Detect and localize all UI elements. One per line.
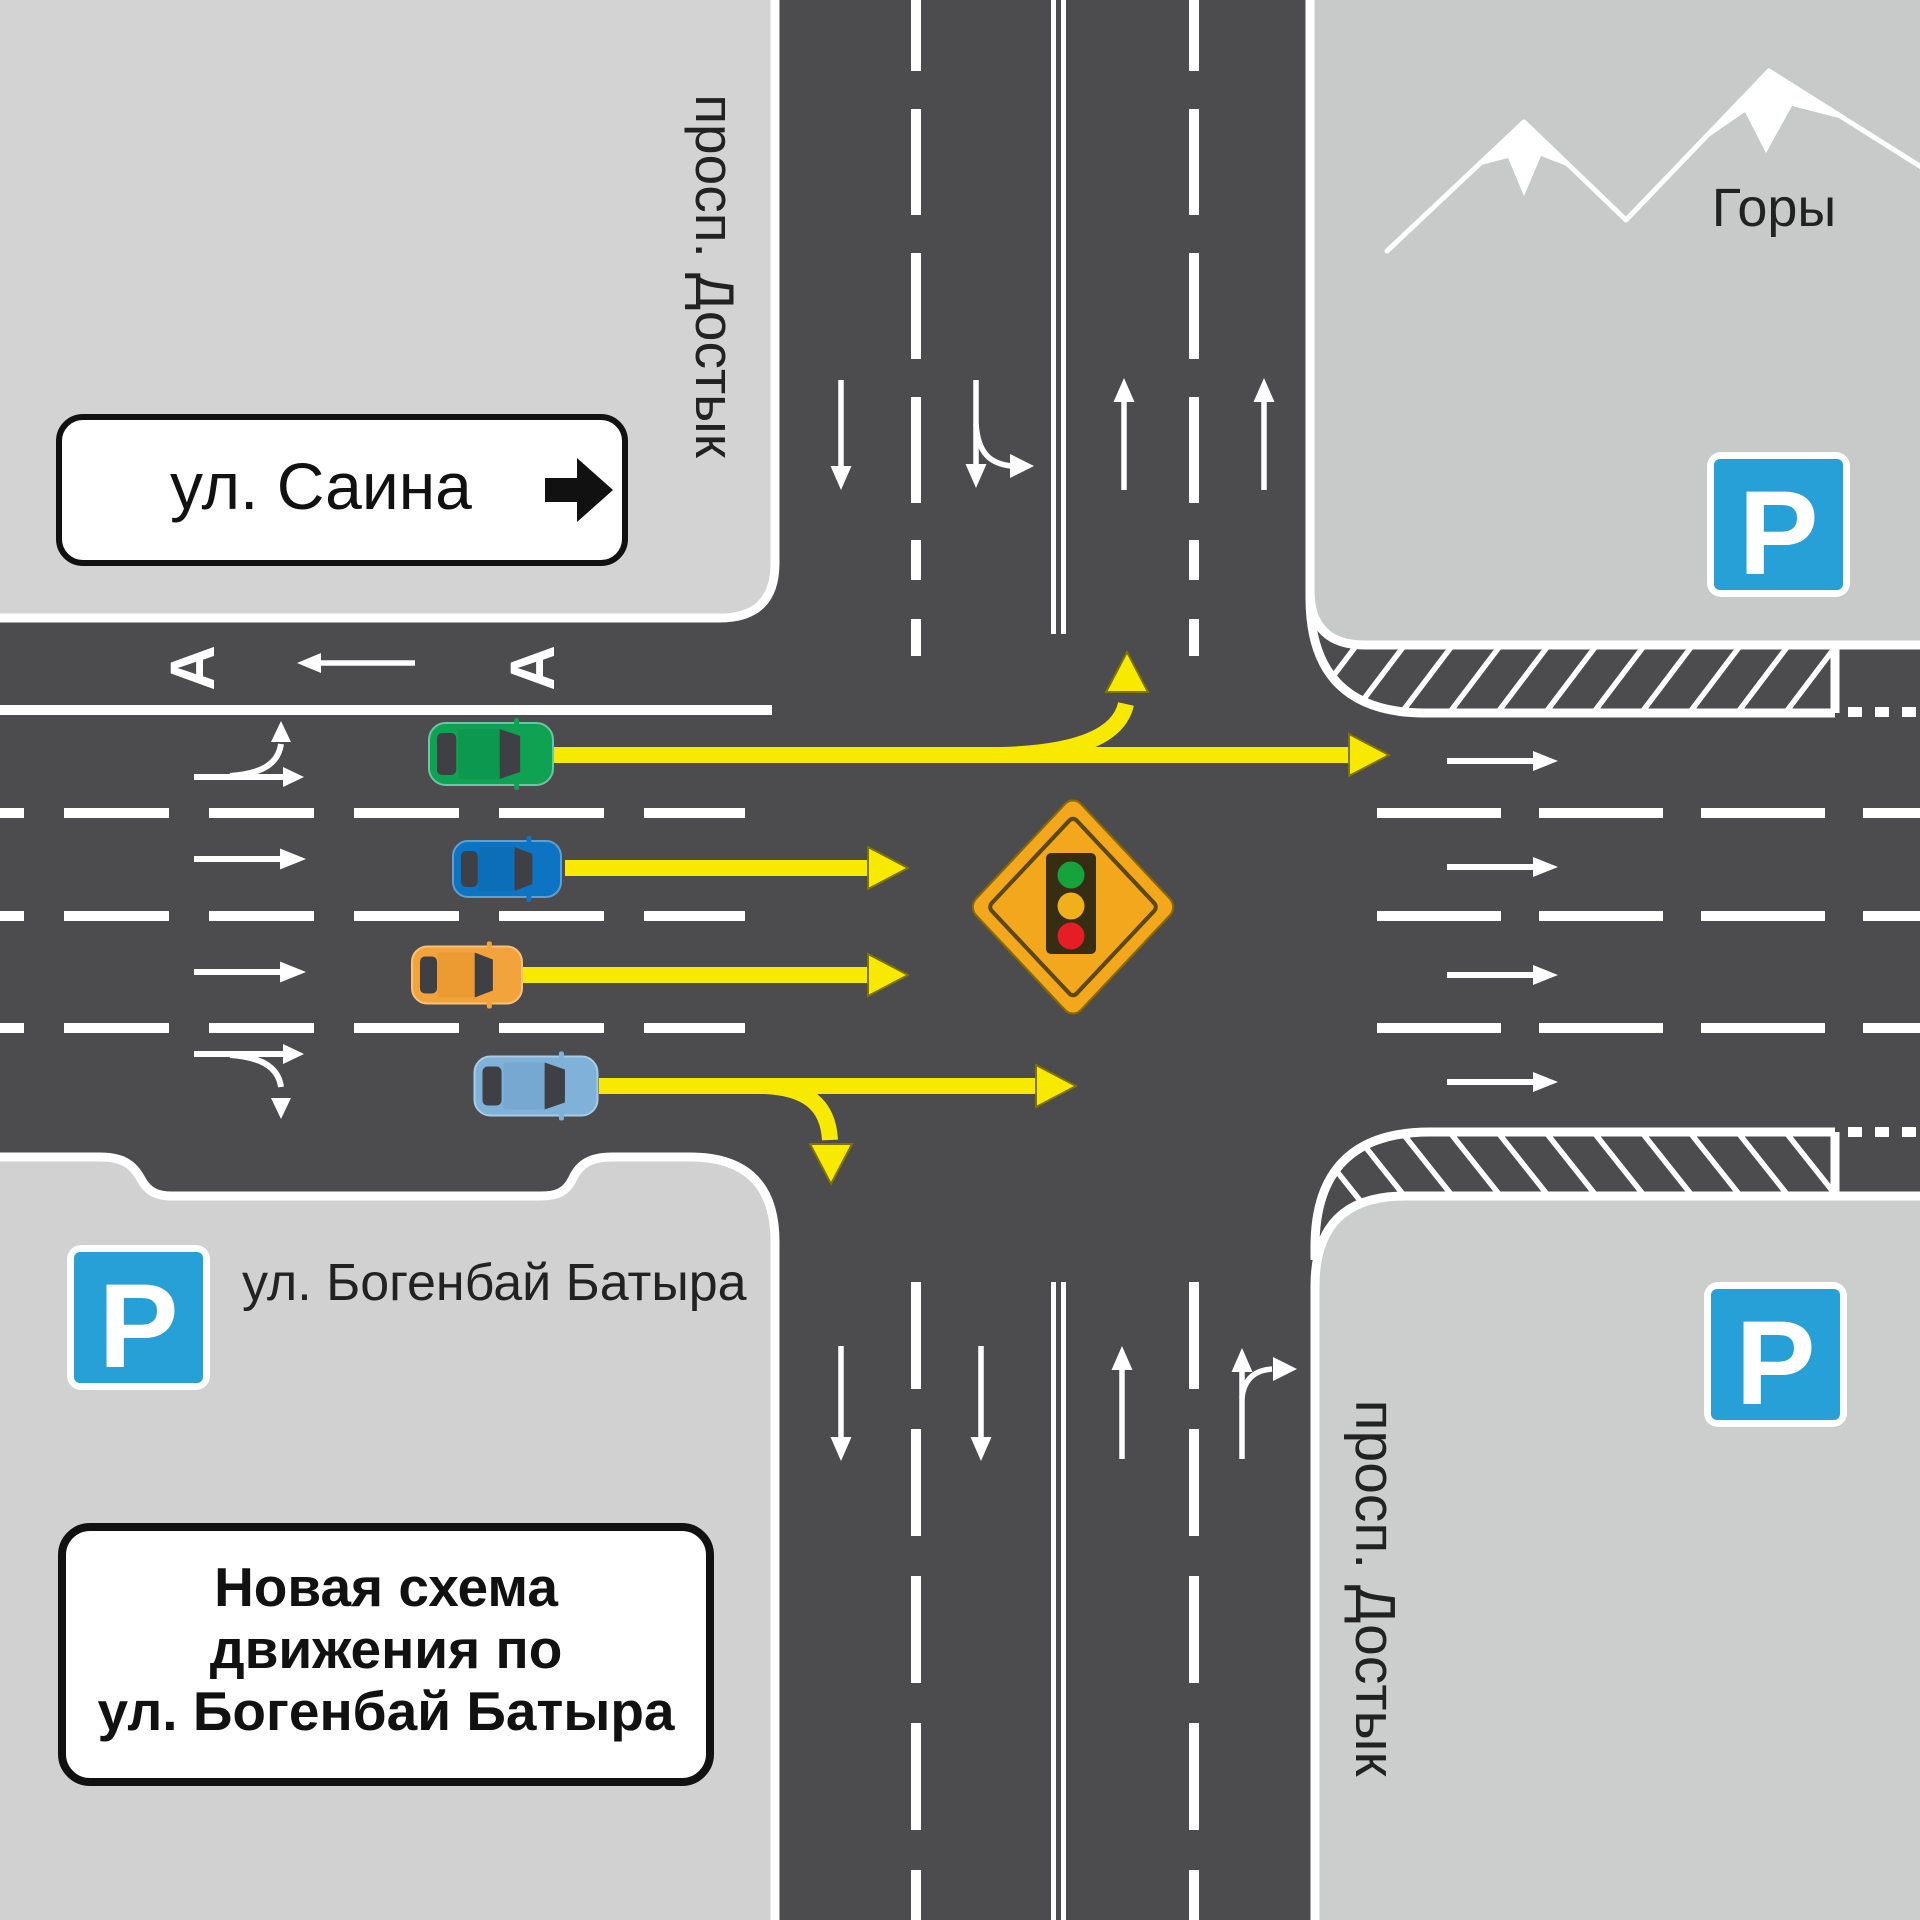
svg-text:просп. Достык: просп. Достык xyxy=(684,94,746,458)
svg-text:А: А xyxy=(158,645,228,691)
svg-text:P: P xyxy=(1735,1296,1815,1430)
svg-text:Горы: Горы xyxy=(1712,178,1837,238)
svg-text:ул. Богенбай Батыра: ул. Богенбай Батыра xyxy=(97,1680,674,1742)
svg-text:А: А xyxy=(498,645,568,691)
svg-text:Новая схема: Новая схема xyxy=(214,1556,558,1618)
svg-text:ул. Богенбай Батыра: ул. Богенбай Батыра xyxy=(242,1254,747,1312)
svg-text:просп. Достык: просп. Достык xyxy=(1343,1400,1407,1778)
svg-text:P: P xyxy=(98,1259,178,1393)
svg-text:ул. Саина: ул. Саина xyxy=(170,449,472,523)
svg-text:движения по: движения по xyxy=(210,1618,563,1680)
svg-text:P: P xyxy=(1738,466,1818,600)
